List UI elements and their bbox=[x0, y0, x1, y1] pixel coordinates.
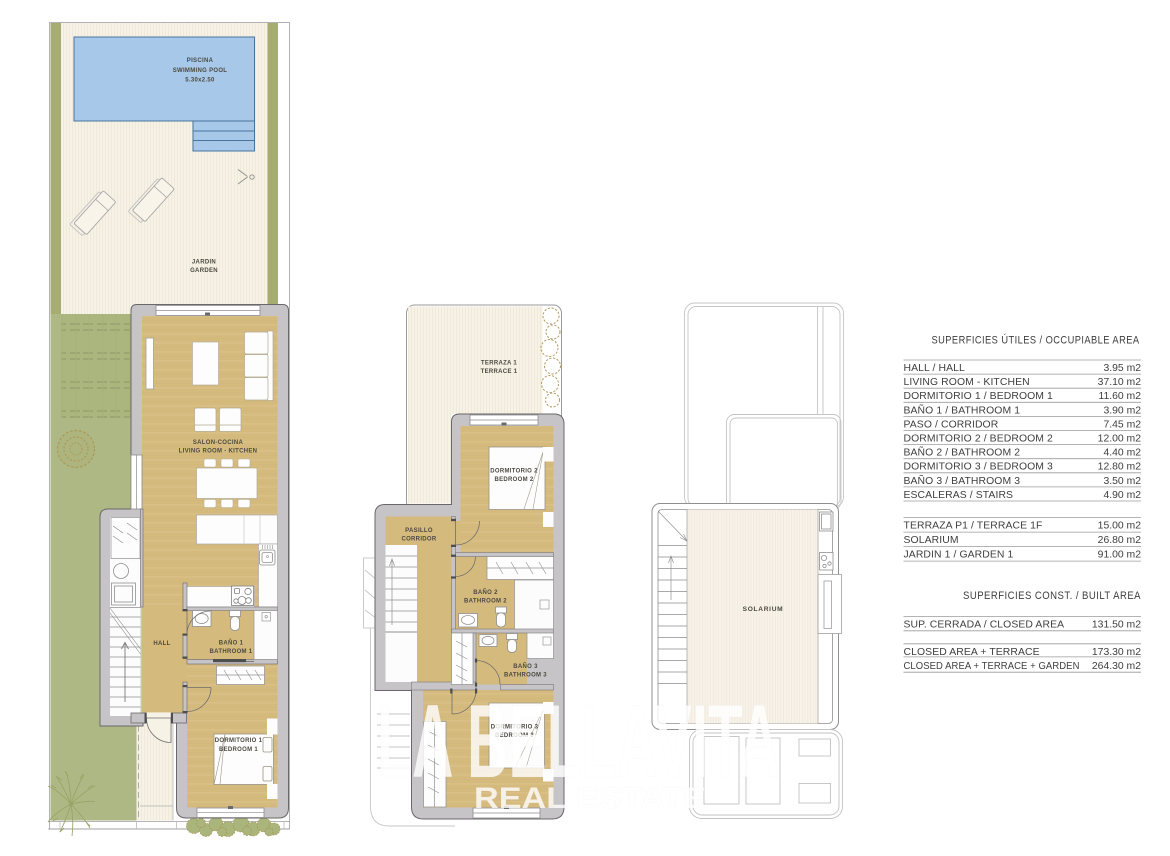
svg-text:BAÑO 1 / BATHROOM 1: BAÑO 1 / BATHROOM 1 bbox=[904, 403, 1021, 416]
svg-text:3.95 m2: 3.95 m2 bbox=[1103, 363, 1141, 374]
svg-text:7.45 m2: 7.45 m2 bbox=[1103, 419, 1141, 430]
svg-text:PISCINA: PISCINA bbox=[187, 58, 214, 64]
svg-text:BATHROOM 1: BATHROOM 1 bbox=[210, 649, 253, 655]
svg-text:CLOSED AREA + TERRACE + GARDEN: CLOSED AREA + TERRACE + GARDEN bbox=[904, 661, 1080, 672]
svg-text:LIVING ROOM - KITCHEN: LIVING ROOM - KITCHEN bbox=[904, 377, 1030, 388]
svg-text:BEDROOM 2: BEDROOM 2 bbox=[494, 477, 533, 483]
svg-text:SUP. CERRADA / CLOSED AREA: SUP. CERRADA / CLOSED AREA bbox=[904, 619, 1065, 630]
svg-text:PASILLO: PASILLO bbox=[405, 528, 433, 534]
svg-text:131.50 m2: 131.50 m2 bbox=[1092, 619, 1141, 630]
svg-text:SUPERFICIES ÚTILES / OCCUPIABL: SUPERFICIES ÚTILES / OCCUPIABLE AREA bbox=[932, 334, 1140, 347]
svg-text:12.00 m2: 12.00 m2 bbox=[1098, 434, 1142, 445]
svg-text:4.40 m2: 4.40 m2 bbox=[1103, 448, 1141, 459]
svg-text:3.90 m2: 3.90 m2 bbox=[1103, 405, 1141, 416]
svg-text:SALON-COCINA: SALON-COCINA bbox=[193, 440, 244, 446]
svg-text:JARDIN 1 / GARDEN 1: JARDIN 1 / GARDEN 1 bbox=[904, 550, 1014, 561]
svg-text:DORMITORIO 2 / BEDROOM 2: DORMITORIO 2 / BEDROOM 2 bbox=[904, 434, 1054, 445]
svg-text:37.10 m2: 37.10 m2 bbox=[1098, 377, 1142, 388]
svg-text:173.30 m2: 173.30 m2 bbox=[1092, 647, 1141, 658]
svg-text:BAÑO 3 / BATHROOM 3: BAÑO 3 / BATHROOM 3 bbox=[904, 474, 1021, 487]
svg-text:REAL ESTATE: REAL ESTATE bbox=[474, 782, 706, 815]
svg-text:91.00 m2: 91.00 m2 bbox=[1098, 550, 1142, 561]
svg-text:DORMITORIO 3 / BEDROOM 3: DORMITORIO 3 / BEDROOM 3 bbox=[904, 462, 1054, 473]
svg-text:SUPERFICIES CONST. / BUILT AR: SUPERFICIES CONST. / BUILT AREA bbox=[963, 590, 1141, 602]
svg-text:CORRIDOR: CORRIDOR bbox=[401, 537, 436, 543]
svg-text:3.50 m2: 3.50 m2 bbox=[1103, 476, 1141, 487]
svg-text:26.80 m2: 26.80 m2 bbox=[1098, 535, 1142, 546]
svg-text:BAÑO 2: BAÑO 2 bbox=[473, 589, 498, 596]
svg-text:BAÑO 1: BAÑO 1 bbox=[219, 640, 244, 647]
svg-text:15.00 m2: 15.00 m2 bbox=[1098, 521, 1142, 532]
svg-text:11.60 m2: 11.60 m2 bbox=[1098, 391, 1141, 402]
svg-text:DORMITORIO 1 / BEDROOM 1: DORMITORIO 1 / BEDROOM 1 bbox=[904, 391, 1054, 402]
svg-text:SOLARIUM: SOLARIUM bbox=[904, 535, 959, 546]
svg-text:LIVING ROOM - KITCHEN: LIVING ROOM - KITCHEN bbox=[179, 449, 258, 455]
svg-text:TERRAZA P1 / TERRACE 1F: TERRAZA P1 / TERRACE 1F bbox=[904, 521, 1043, 532]
svg-text:BATHROOM 2: BATHROOM 2 bbox=[464, 599, 507, 605]
svg-text:CLOSED AREA + TERRACE: CLOSED AREA + TERRACE bbox=[904, 647, 1040, 658]
svg-text:BAÑO 2 / BATHROOM 2: BAÑO 2 / BATHROOM 2 bbox=[904, 446, 1021, 459]
svg-text:GARDEN: GARDEN bbox=[190, 268, 218, 274]
svg-text:TERRAZA 1: TERRAZA 1 bbox=[481, 361, 518, 367]
svg-text:SWIMMING POOL: SWIMMING POOL bbox=[173, 68, 228, 74]
svg-text:PASO / CORRIDOR: PASO / CORRIDOR bbox=[904, 419, 999, 430]
svg-text:4.90 m2: 4.90 m2 bbox=[1103, 490, 1141, 501]
svg-text:DORMITORIO 2: DORMITORIO 2 bbox=[490, 469, 538, 475]
svg-text:ESCALERAS / STAIRS: ESCALERAS / STAIRS bbox=[904, 490, 1014, 501]
svg-text:264.30 m2: 264.30 m2 bbox=[1092, 661, 1141, 672]
svg-text:5.30x2.50: 5.30x2.50 bbox=[185, 78, 215, 84]
svg-text:12.80 m2: 12.80 m2 bbox=[1098, 462, 1142, 473]
svg-text:HALL / HALL: HALL / HALL bbox=[904, 363, 965, 374]
svg-text:HALL: HALL bbox=[153, 641, 170, 647]
svg-text:JARDIN: JARDIN bbox=[192, 260, 216, 266]
svg-text:BATHROOM 3: BATHROOM 3 bbox=[504, 673, 547, 679]
svg-text:SOLARIUM: SOLARIUM bbox=[743, 606, 784, 613]
svg-text:BAÑO 3: BAÑO 3 bbox=[513, 663, 538, 670]
svg-text:DORMITORIO 1: DORMITORIO 1 bbox=[215, 738, 263, 744]
svg-text:TERRACE 1: TERRACE 1 bbox=[481, 369, 518, 375]
svg-text:BEDROOM 1: BEDROOM 1 bbox=[219, 747, 258, 753]
